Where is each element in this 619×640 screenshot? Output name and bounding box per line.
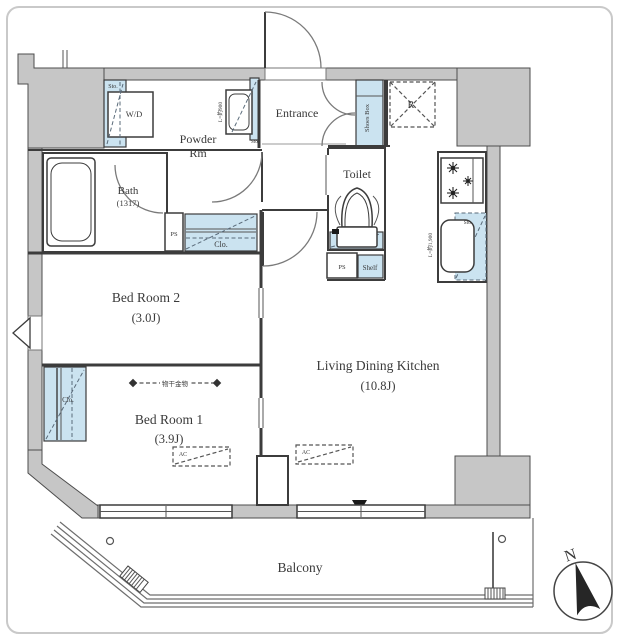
entrance-doorway xyxy=(265,68,326,80)
wall-bottom-middle xyxy=(232,505,297,518)
entrance-area: Entrance Shoes Box R xyxy=(259,80,435,148)
toilet-lid-left xyxy=(335,196,341,225)
bedroom1-size-label: (3.9J) xyxy=(155,432,184,446)
washer-dryer-label: W/D xyxy=(126,109,143,119)
stove xyxy=(441,158,483,203)
hall-closet-label: Clo. xyxy=(214,240,228,249)
pipe-space-label: PS xyxy=(170,231,178,238)
wall-right-strip xyxy=(487,146,500,456)
wall-bottom-right-band xyxy=(425,505,530,518)
wall-left-chamfer xyxy=(28,450,98,518)
laundry-pole-label: 物干金物 xyxy=(162,379,189,388)
hall-storage: PS Clo. xyxy=(165,213,257,251)
laundry-pole-end xyxy=(129,379,137,387)
entrance-label: Entrance xyxy=(276,106,319,120)
bath-label: Bath xyxy=(118,185,139,197)
walls xyxy=(18,50,530,518)
kitchen-storage-label: Sto. xyxy=(464,220,473,226)
kitchen: Sto. L=約1,900 xyxy=(426,152,486,282)
refrigerator-label: R xyxy=(408,100,415,111)
bedroom1-closet-label: Clo. xyxy=(62,396,74,404)
wall-top-left-block xyxy=(18,54,104,148)
ldk-label: Living Dining Kitchen xyxy=(317,358,440,373)
floor-plan-drawing: Sto. W/D Powder Rm L=約900 Sto. Entrance … xyxy=(0,0,619,640)
drain-icon xyxy=(499,536,506,543)
wall-top-band-left xyxy=(104,68,265,80)
toilet-flush-handle xyxy=(332,229,339,234)
floor-plan-page: Sto. W/D Powder Rm L=約900 Sto. Entrance … xyxy=(0,0,619,640)
laundry-pole-end xyxy=(213,379,221,387)
entrance-door-swing-arc xyxy=(265,12,321,68)
bedroom2: Bed Room 2 (3.0J) xyxy=(13,253,261,350)
bath-size-label: (1317) xyxy=(117,198,140,208)
ldk-size-label: (10.8J) xyxy=(360,379,395,393)
partition-wall xyxy=(259,210,263,458)
ac-label-ldk: AC xyxy=(302,450,310,456)
powder-door-arc xyxy=(212,152,262,202)
kitchen-length-label: L=約1,900 xyxy=(426,233,434,258)
balcony-label: Balcony xyxy=(278,560,323,575)
wall-top-band-right xyxy=(326,68,457,80)
bedroom1: Clo. 物干金物 Bed Room 1 (3.9J) AC xyxy=(44,367,230,466)
powder-room: Sto. W/D Powder Rm L=約900 Sto. xyxy=(104,78,259,160)
balcony-hatch-box xyxy=(485,588,505,599)
toilet-lid-right xyxy=(373,196,379,225)
shelf-label: Shelf xyxy=(363,264,378,272)
kitchen-sink xyxy=(441,220,474,272)
vanity-basin xyxy=(229,94,249,130)
shoes-door-arc-top xyxy=(322,82,355,115)
balcony: Balcony xyxy=(51,518,533,607)
ac-label-bedroom1: AC xyxy=(179,452,187,458)
ldk-door-arc xyxy=(263,212,317,266)
north-label: N xyxy=(562,546,579,566)
drain-icon xyxy=(107,538,114,545)
pipe-space-2-label: PS xyxy=(338,264,346,271)
powder-room-label-1: Powder xyxy=(180,132,217,146)
wall-left-lower xyxy=(28,350,42,450)
toilet-tank xyxy=(337,227,377,247)
wall-top-right-block xyxy=(457,68,530,146)
wall-left-upper xyxy=(28,148,42,316)
vanity-length-label: L=約900 xyxy=(216,102,224,122)
bathtub-inner xyxy=(51,163,91,241)
bedroom2-label: Bed Room 2 xyxy=(112,290,180,305)
bedroom2-size-label: (3.0J) xyxy=(132,311,161,325)
shoes-box-label: Shoes Box xyxy=(364,103,371,132)
bedroom1-label: Bed Room 1 xyxy=(135,412,203,427)
powder-room-label-2: Rm xyxy=(189,146,207,160)
living-dining-kitchen: Living Dining Kitchen (10.8J) AC xyxy=(296,358,440,513)
toilet-room: Toilet Sto. PS Shelf xyxy=(326,146,390,280)
compass: N xyxy=(554,546,612,620)
pillar xyxy=(257,456,288,505)
window-left-icon xyxy=(13,318,30,348)
storage-label: Sto. xyxy=(108,84,118,90)
toilet-label: Toilet xyxy=(343,167,371,181)
shoes-door-arc-bottom xyxy=(322,113,355,146)
